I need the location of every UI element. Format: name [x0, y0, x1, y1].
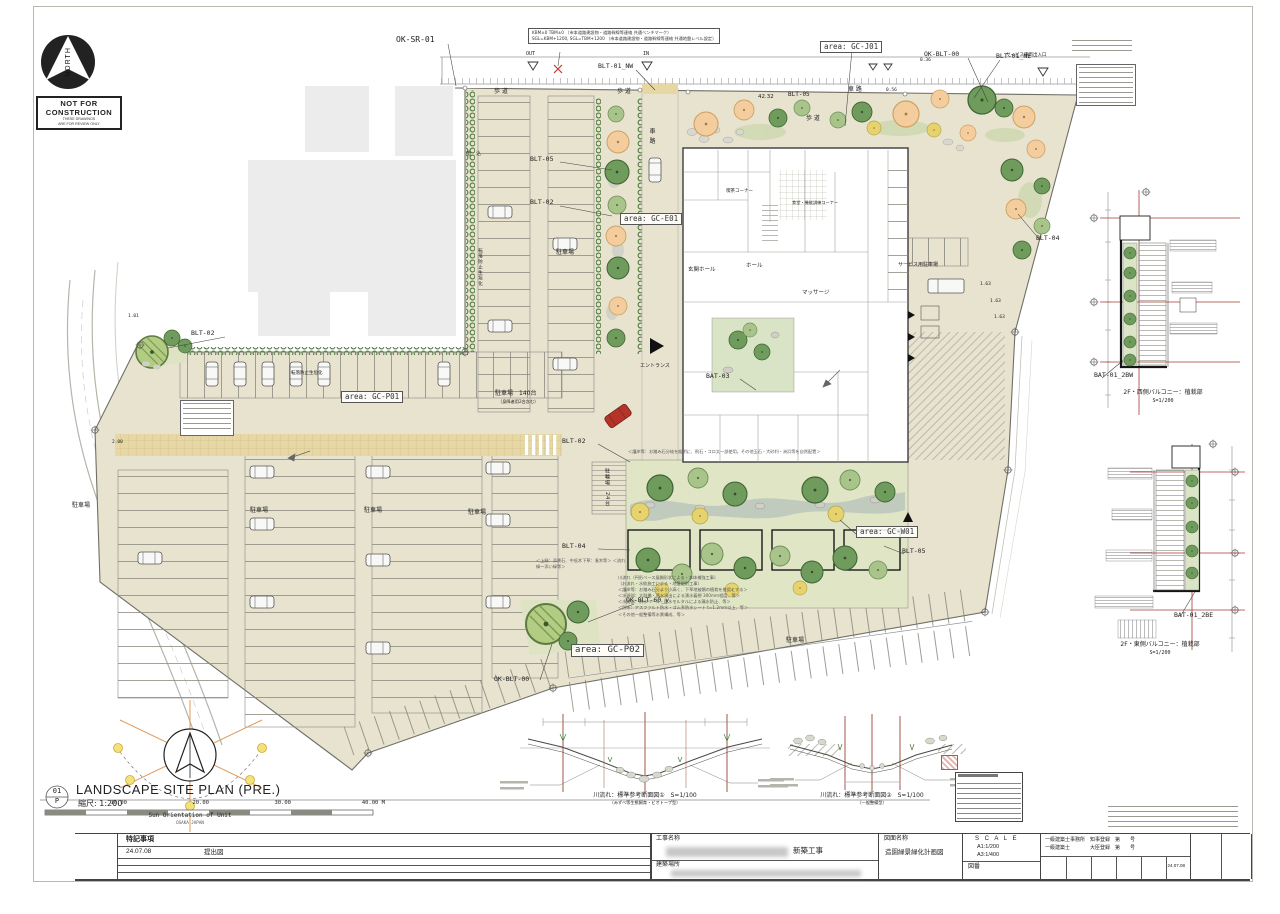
location-redacted	[671, 870, 861, 877]
label-hedge-note-1: 転落防止生垣化	[291, 372, 323, 377]
dim-056: 0.56	[886, 89, 897, 94]
label-sidewalk-2: 歩 道	[617, 89, 631, 95]
label-sidewalk-3: 歩 道	[806, 116, 820, 122]
label-ok-blt-00-top: OK-BLT-00	[924, 51, 959, 58]
titleblock-scale-cell: S C A L E A1:1/200 A3:1/400 図番	[962, 834, 1041, 879]
room-cafe: 喫茶コーナー	[726, 190, 753, 195]
section-1-title: 川流れ：標準参考断面図① S=1/100	[593, 793, 697, 799]
registration-line1: 一級建築士事務所 知事登録 第 号	[1045, 838, 1135, 843]
label-blt-02-corner: BLT-02	[191, 330, 214, 337]
section-2-sub: （一般整備型）	[857, 801, 886, 805]
project-name-redacted	[666, 847, 788, 857]
label-ok-blt-00-bottom: OK-BLT-00	[494, 676, 529, 683]
room-hall: ホール	[746, 264, 763, 270]
section-2-title: 川流れ：標準参考断面図② S=1/100	[820, 793, 924, 799]
label-blt-05-median: BLT-05	[530, 156, 553, 163]
garden-note-left: ＜上緑：添景石、中低木下草：潅木等＞ ＜流れ緑〜添い緑等＞	[536, 558, 628, 570]
garden-note-item: ＜防水：アスファルト防水・ゴム系防水シート t=1.2mm以上、等＞	[618, 605, 748, 611]
titleblock-drawing-cell: 図面名称 造園緑景緑化計画図	[878, 834, 963, 879]
area-label-gc-j01: area: GC-J01	[820, 41, 882, 53]
drawing-sheet: NORTH NOT FOR CONSTRUCTION THESE DRAWING…	[0, 0, 1280, 914]
label-parking-2: 駐車場	[250, 508, 268, 514]
not-for-construction-stamp: NOT FOR CONSTRUCTION THESE DRAWINGS ARE …	[36, 96, 122, 130]
label-parking-5: 駐車場	[556, 250, 574, 256]
titleblock-stamp-cell	[1190, 834, 1252, 879]
label-out: OUT	[526, 52, 535, 57]
label-blt-04-right: BLT-04	[1036, 235, 1059, 242]
north-label: NORTH	[65, 47, 72, 77]
notes-header: 特記事項	[126, 836, 154, 843]
label-in: IN	[643, 52, 649, 57]
label-parking-main: 駐車場 140台	[495, 391, 536, 397]
location-label: 建築場所	[656, 862, 680, 868]
dim-036: 0.36	[920, 59, 931, 64]
dim-4232: 42.32	[758, 95, 774, 101]
legend-table	[955, 772, 1023, 822]
nfc-line2: CONSTRUCTION	[39, 109, 119, 118]
label-parking-sub: （身障者用2台含む）	[498, 400, 538, 404]
garden-note-left-1: ＜上緑：添景石、中低木下草：潅木等＞	[536, 558, 611, 563]
dim-163a: 1.63	[980, 283, 991, 288]
scale-bar-10: 10.00	[110, 801, 127, 807]
scale-bar-30: 30.00	[274, 801, 291, 807]
label-service-parking: サービス用駐車場	[898, 263, 938, 268]
north-arrow-icon: NORTH	[41, 35, 95, 89]
label-planting: 植 込	[466, 152, 481, 157]
area-label-gc-p01: area: GC-P01	[341, 391, 403, 403]
label-roadway-1: 車 路	[848, 87, 862, 93]
label-bike-parking: 駐輪場 24台	[604, 468, 609, 506]
stormwater-note-box	[180, 400, 234, 436]
label-ok-sr-01: OK-SR-01	[396, 36, 435, 44]
detail-east-scale: S=1/200	[1149, 651, 1170, 656]
benchmark-note-line2: SGL=KBM+1200, SGL=TBM+1200 （市本道路建設物・道路幹線…	[532, 36, 716, 42]
titleblock-project-cell: 工事名称 新築工事 建築場所	[650, 834, 879, 879]
garden-note-list: 川流れ（円形ベース展開形状による・本体補強工事） （お流れ・水紋施工による・地盤…	[618, 575, 748, 618]
section-2-drawing	[770, 714, 978, 792]
sheet-number: 01	[53, 788, 61, 795]
detail-west-scale: S=1/200	[1152, 399, 1173, 404]
sun-sub: OSAKA JAPAN	[176, 821, 204, 825]
registration-line2: 一級建築士 大臣登録 第 号	[1045, 846, 1135, 851]
label-parking-6: 駐車場	[786, 638, 804, 644]
benchmark-note: KBM±0 TBM±0 （市本道路建設物・道路幹線等連絡 共通ベンチマーク） S…	[528, 28, 720, 44]
title-block: 特記事項 24.07.08 提出図 工事名称 新築工事 建築場所 図面名称 造園…	[75, 833, 1250, 881]
room-massage: マッサージ	[802, 291, 829, 297]
label-blt-01-nw: BLT-01_NW	[598, 63, 633, 70]
service-truck	[928, 279, 964, 293]
section-1-sub: （みずべ等生態飼育・ビオトープ型）	[610, 801, 681, 805]
scale-bar-20: 20.00	[192, 801, 209, 807]
label-blt-05-right: BLT-05	[902, 548, 925, 555]
detail-west-caption: 2F・西側バルコニー：植栽部	[1123, 390, 1202, 396]
label-roadway-2: 車 路	[648, 128, 654, 145]
number-label: 図番	[968, 864, 980, 870]
room-dining: 食堂・機能訓練コーナー	[792, 201, 838, 205]
titleblock-date: 24.07.08	[1168, 864, 1186, 869]
drawing-name-value: 造園緑景緑化計画図	[885, 849, 944, 856]
scale-a1: A1:1/200	[977, 845, 999, 851]
project-label: 工事名称	[656, 836, 680, 842]
label-blt-05-top: BLT-05	[788, 92, 810, 98]
detail-east-caption: 2F・東側バルコニー：植栽部	[1120, 642, 1199, 648]
revision-date: 24.07.08	[126, 849, 151, 856]
area-label-gc-e01: area: GC-E01	[620, 213, 682, 225]
courtyard-garden	[712, 318, 794, 392]
legend-color-chip	[941, 755, 958, 770]
label-parking-4: 駐車場	[468, 510, 486, 516]
area-label-gc-w01: area: GC-W01	[856, 526, 918, 538]
sheet-code: P	[55, 798, 59, 805]
sun-caption: Sun Orientation of Unit	[148, 813, 231, 819]
label-entrance: エントランス	[640, 364, 670, 369]
site-plan-graphics: NORTH	[0, 0, 1280, 914]
dim-101: 1.01	[128, 315, 139, 320]
area-label-gc-p02: area: GC-P02	[571, 644, 644, 657]
north-road	[440, 56, 1090, 84]
nfc-line4: ARE FOR REVIEW ONLY	[39, 122, 119, 126]
fine-print-notes	[1108, 806, 1238, 828]
detail-east-drawing	[1095, 440, 1245, 653]
label-bat-01-2be: BAT-01_2BE	[1174, 612, 1213, 619]
service-yard	[908, 332, 1005, 460]
dim-163b: 1.63	[990, 300, 1001, 305]
garden-note-top: ＜護岸等：お踏み石分岐を般明に、飛石・コロ太一部使用。その他玉石・大砂利・洲浜等…	[628, 450, 821, 454]
label-sidewalk-1: 歩 道	[494, 89, 508, 95]
project-tail: 新築工事	[793, 847, 823, 855]
room-genkan-hall: 玄関ホール	[688, 268, 716, 274]
label-bat-03: BAT-03	[706, 373, 729, 380]
revision-text: 提出図	[204, 849, 224, 856]
drawing-title: LANDSCAPE SITE PLAN (PRE.)	[76, 783, 280, 796]
dim-200: 2.00	[112, 441, 123, 446]
label-hedge-note-2: 転落防止生垣化	[477, 248, 482, 287]
titleblock-notes-cell: 特記事項 24.07.08 提出図	[117, 834, 652, 879]
label-blt-04-center: BLT-04	[562, 543, 585, 550]
dim-163c: 1.63	[994, 316, 1005, 321]
label-blt-02-center: BLT-02	[562, 438, 585, 445]
drawing-name-label: 図面名称	[884, 836, 908, 842]
scale-label: S C A L E	[975, 836, 1018, 842]
section-1-drawing	[500, 712, 788, 794]
label-parking-1: 駐車場	[72, 503, 90, 509]
existing-buildings	[248, 86, 456, 336]
scale-bar-40: 40.00 M	[362, 801, 385, 807]
garden-note-item: ＜その他一般整備等水景構成、等＞	[618, 612, 748, 618]
titleblock-registration-cell: 一級建築士事務所 知事登録 第 号 一級建築士 大臣登録 第 号 24.07.0…	[1040, 834, 1191, 879]
label-blt-01-ne: BLT-01_NE	[996, 53, 1031, 60]
scale-a3: A3:1/400	[977, 853, 999, 859]
building-footprint	[683, 148, 908, 462]
label-blt-02-median: BLT-02	[530, 199, 553, 206]
label-bat-01-2bw: BAT-01_2BW	[1094, 372, 1133, 379]
label-parking-3: 駐車場	[364, 508, 382, 514]
top-right-note-box	[1076, 64, 1136, 106]
detail-west-drawing	[1090, 188, 1241, 416]
top-right-note	[1072, 40, 1132, 54]
